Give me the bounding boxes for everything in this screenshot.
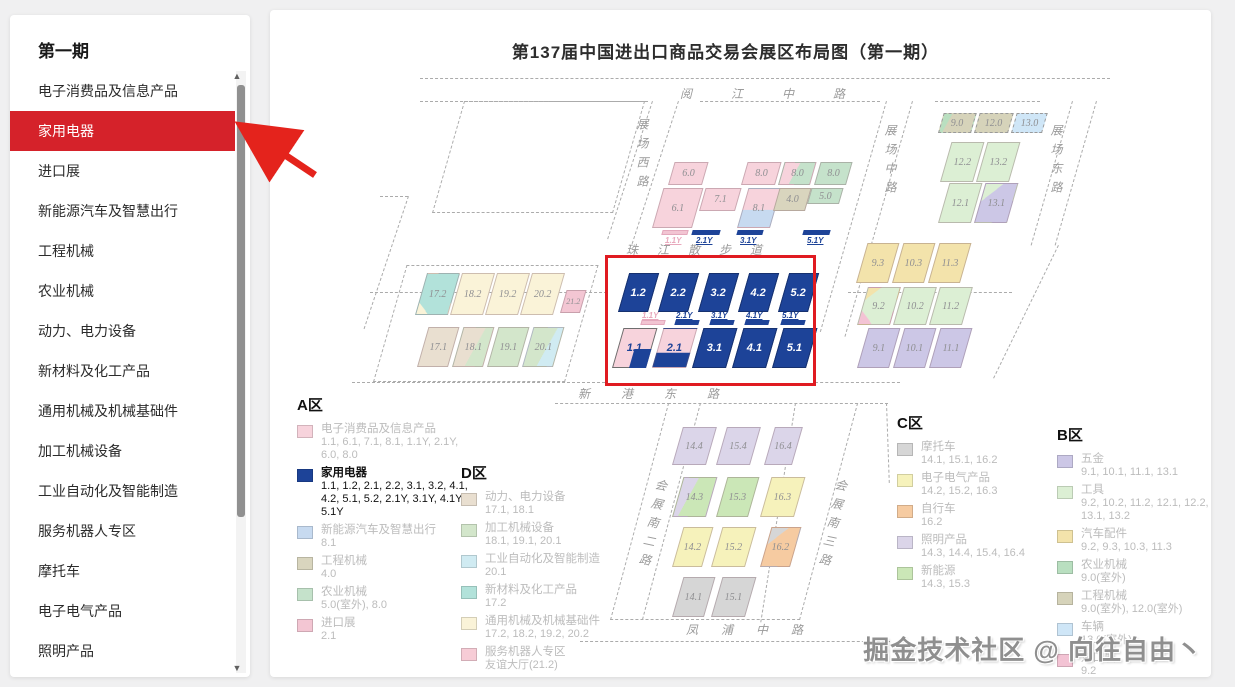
- sidebar-item-new-materials[interactable]: 新材料及化工产品: [10, 351, 236, 391]
- hall-bar-2.1Y: [691, 230, 720, 235]
- road-label-xingang: 新 港 东 路: [578, 385, 733, 402]
- swatch-gray: [897, 443, 913, 456]
- legend-item: 进口展2.1: [297, 617, 469, 643]
- bar-label-5.1Y: 5.1Y: [807, 236, 823, 245]
- sidebar-item-agri-machinery[interactable]: 农业机械: [10, 271, 236, 311]
- legend-item-home-appliances: 家用电器1.1, 1.2, 2.1, 2.2, 3.1, 3.2, 4.1, 4…: [297, 467, 469, 519]
- sidebar-item-general-machinery[interactable]: 通用机械及机械基础件: [10, 391, 236, 431]
- legend-item: 汽车配件9.2, 9.3, 10.3, 11.3: [1057, 528, 1211, 554]
- swatch-green: [897, 567, 913, 580]
- watermark: 掘金技术社区 @ 向往自由丶: [863, 630, 1203, 667]
- road-line: [815, 382, 900, 383]
- road-line: [855, 403, 888, 404]
- floor-plan-panel: 第137届中国进出口商品交易会展区布局图（第一期） 阅 江 中 路 展场西路 展…: [270, 10, 1211, 677]
- sidebar-item-electronic-electrical[interactable]: 电子电气产品: [10, 591, 236, 631]
- legend-item: 工程机械4.0: [297, 555, 469, 581]
- hall-6.0: 6.0: [668, 162, 709, 185]
- sidebar-item-import[interactable]: 进口展: [10, 151, 236, 191]
- bar-label-3.1Y: 3.1Y: [740, 236, 756, 245]
- legend-item: 电子电气产品14.2, 15.2, 16.3: [897, 472, 1062, 498]
- hall-11.1: 11.1: [929, 328, 972, 368]
- scroll-up-icon[interactable]: ▲: [232, 71, 242, 81]
- swatch-lightgreen: [1057, 486, 1073, 499]
- hall-13.0: 13.0: [1011, 113, 1048, 133]
- legend-title-b: B区: [1057, 424, 1211, 445]
- swatch-green: [461, 524, 477, 537]
- road-label-zhanchang-dong: 展场东路: [1048, 124, 1065, 200]
- legend-item: 农业机械9.0(室外): [1057, 559, 1211, 585]
- legend-item: 工具9.2, 10.2, 11.2, 12.1, 12.2, 13.1, 13.…: [1057, 484, 1211, 523]
- swatch-pink: [297, 619, 313, 632]
- swatch-green: [297, 588, 313, 601]
- road-label-fengpu: 凤 浦 中 路: [686, 621, 813, 638]
- legend-item: 照明产品14.3, 14.4, 15.4, 16.4: [897, 534, 1062, 560]
- legend-item: 新能源汽车及智慧出行8.1: [297, 524, 469, 550]
- sidebar-item-processing-machinery[interactable]: 加工机械设备: [10, 431, 236, 471]
- hall-7.1: 7.1: [699, 188, 742, 211]
- hall-8.0: 8.0: [814, 162, 853, 185]
- swatch-pink: [461, 648, 477, 661]
- swatch-navy: [297, 469, 313, 482]
- swatch-lavender: [897, 536, 913, 549]
- hall-4.0: 4.0: [773, 188, 812, 211]
- legend-zone-a: A区 电子消费品及信息产品1.1, 6.1, 7.1, 8.1, 1.1Y, 2…: [297, 394, 469, 648]
- hall-bar-3.1Y: [736, 230, 763, 235]
- sidebar-item-power-equipment[interactable]: 动力、电力设备: [10, 311, 236, 351]
- sidebar-item-construction-machinery[interactable]: 工程机械: [10, 231, 236, 271]
- legend-item: 通用机械及机械基础件17.2, 18.2, 19.2, 20.2: [461, 615, 641, 641]
- road-label-zhanchang-zhong: 展场中路: [882, 124, 899, 200]
- swatch-lightblue: [297, 526, 313, 539]
- legend-title-a: A区: [297, 394, 469, 415]
- legend-item: 工业自动化及智能制造20.1: [461, 553, 641, 579]
- road-line: [886, 403, 890, 483]
- swatch-yellow: [1057, 530, 1073, 543]
- hall-9.0: 9.0: [938, 113, 977, 133]
- legend-item: 自行车16.2: [897, 503, 1062, 529]
- swatch-green: [1057, 561, 1073, 574]
- swatch-pink: [297, 425, 313, 438]
- hall-bar-5.1Y: [802, 230, 830, 235]
- sidebar-item-lighting[interactable]: 照明产品: [10, 631, 236, 671]
- bar-label-1.1Y: 1.1Y: [665, 236, 681, 245]
- map-title: 第137届中国进出口商品交易会展区布局图（第一期）: [270, 38, 1181, 63]
- sidebar-item-nev[interactable]: 新能源汽车及智慧出行: [10, 191, 236, 231]
- bar-label-2.1Y: 2.1Y: [696, 236, 712, 245]
- legend-item: 加工机械设备18.1, 19.1, 20.1: [461, 522, 641, 548]
- sidebar-item-motorcycles[interactable]: 摩托车: [10, 551, 236, 591]
- sidebar-item-new-energy[interactable]: 新能源: [10, 671, 236, 677]
- hall-12.0: 12.0: [974, 113, 1014, 133]
- legend-item: 五金9.1, 10.1, 11.1, 13.1: [1057, 453, 1211, 479]
- hall-5.0: 5.0: [807, 188, 844, 204]
- swatch-orange: [897, 505, 913, 518]
- road-line: [993, 245, 1059, 378]
- road-line: [555, 403, 670, 404]
- category-sidebar: 第一期 电子消费品及信息产品 家用电器 进口展 新能源汽车及智慧出行 工程机械 …: [10, 15, 250, 677]
- road-line: [380, 196, 408, 197]
- swatch-cream: [461, 617, 477, 630]
- legend-item: 农业机械5.0(室外), 8.0: [297, 586, 469, 612]
- swatch-yellow: [897, 474, 913, 487]
- sidebar-item-industrial-automation[interactable]: 工业自动化及智能制造: [10, 471, 236, 511]
- legend-zone-d: D区 动力、电力设备17.1, 18.1 加工机械设备18.1, 19.1, 2…: [461, 462, 641, 677]
- swatch-tan: [297, 557, 313, 570]
- swatch-teal: [461, 586, 477, 599]
- road-line: [935, 101, 1040, 102]
- legend-title-d: D区: [461, 462, 641, 483]
- legend-zone-c: C区 摩托车14.1, 15.1, 16.2 电子电气产品14.2, 15.2,…: [897, 412, 1062, 596]
- scroll-down-icon[interactable]: ▼: [232, 663, 242, 673]
- legend-item: 新材料及化工产品17.2: [461, 584, 641, 610]
- sidebar-item-consumer-electronics[interactable]: 电子消费品及信息产品: [10, 71, 236, 111]
- scrollbar-thumb[interactable]: [237, 85, 245, 517]
- road-label-yuejiang: 阅 江 中 路: [680, 85, 863, 102]
- plaza-outline: [432, 101, 645, 213]
- road-line: [420, 78, 1110, 79]
- hall-6.1: 6.1: [652, 188, 703, 228]
- sidebar-item-home-appliances[interactable]: 家用电器: [10, 111, 235, 151]
- hall-11.3: 11.3: [928, 243, 971, 283]
- road-line: [352, 382, 605, 383]
- swatch-cyan: [461, 555, 477, 568]
- road-label-zhanchang-xi: 展场西路: [634, 118, 651, 194]
- hall-bar-1.1Y: [661, 230, 688, 235]
- legend-item: 服务机器人专区友谊大厅(21.2): [461, 646, 641, 672]
- swatch-lavender: [1057, 455, 1073, 468]
- legend-item: 工程机械9.0(室外), 12.0(室外): [1057, 590, 1211, 616]
- sidebar-title: 第一期: [38, 37, 89, 62]
- legend-item: 动力、电力设备17.1, 18.1: [461, 491, 641, 517]
- legend-item: 新能源14.3, 15.3: [897, 565, 1062, 591]
- legend-item: 电子消费品及信息产品1.1, 6.1, 7.1, 8.1, 1.1Y, 2.1Y…: [297, 423, 469, 462]
- legend-title-c: C区: [897, 412, 1062, 433]
- highlight-box: [605, 255, 816, 386]
- legend-item: 摩托车14.1, 15.1, 16.2: [897, 441, 1062, 467]
- hall-8.0: 8.0: [778, 162, 817, 185]
- hall-8.0: 8.0: [741, 162, 782, 185]
- swatch-tan: [461, 493, 477, 506]
- swatch-tan: [1057, 592, 1073, 605]
- sidebar-item-service-robots[interactable]: 服务机器人专区: [10, 511, 236, 551]
